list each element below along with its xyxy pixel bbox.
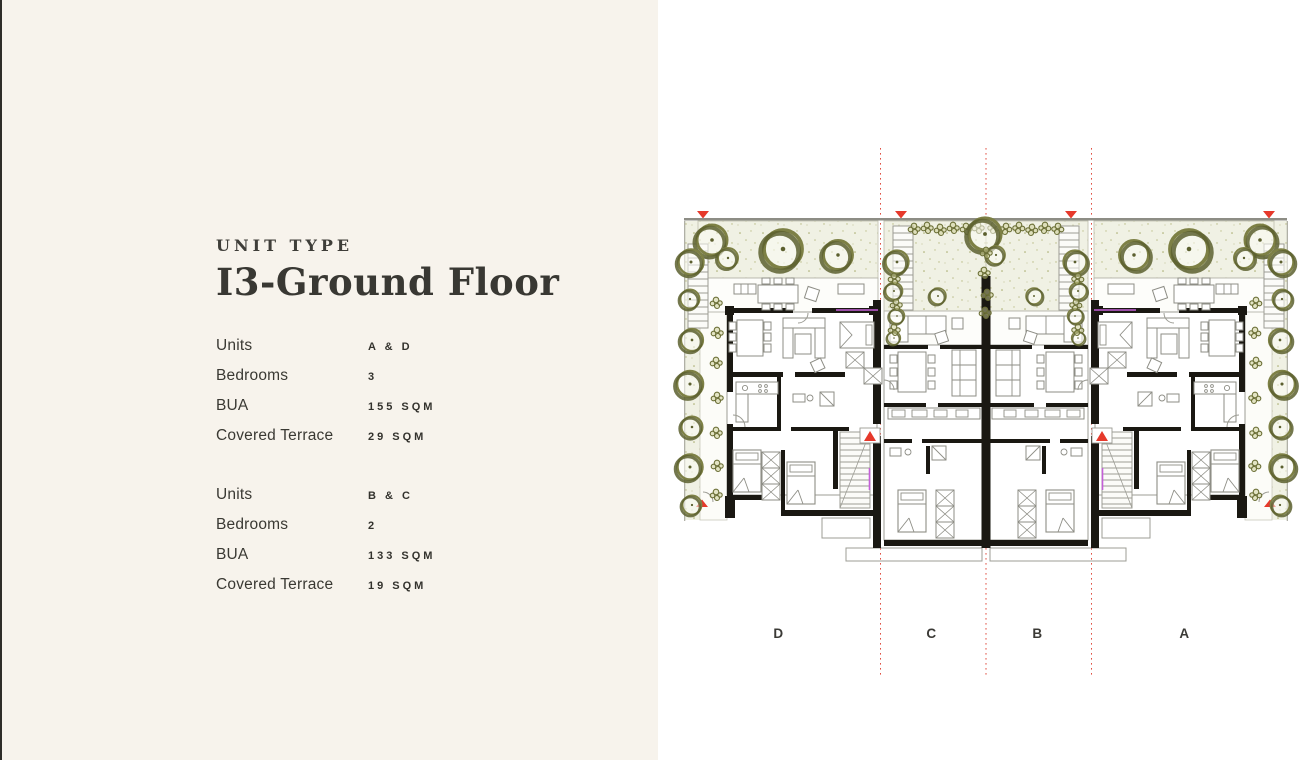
spec-block-units-b-c: Units B & C Bedrooms 2 BUA 133 SQM Cover… — [216, 486, 616, 606]
page-title: I3-Ground Floor — [216, 260, 616, 304]
spec-value: 19 SQM — [368, 580, 426, 592]
spec-block-units-a-d: Units A & D Bedrooms 3 BUA 155 SQM Cover… — [216, 337, 616, 457]
spec-value: 29 SQM — [368, 431, 426, 443]
spec-label: Bedrooms — [216, 516, 368, 534]
spec-row: Covered Terrace 19 SQM — [216, 576, 616, 606]
spec-value: B & C — [368, 490, 413, 502]
spec-value: A & D — [368, 341, 413, 353]
spec-label: Covered Terrace — [216, 576, 368, 594]
spec-label: Units — [216, 337, 368, 355]
spec-row: Units A & D — [216, 337, 616, 367]
unit-label-b: B — [1032, 626, 1043, 641]
spec-label: BUA — [216, 546, 368, 564]
spec-row: Bedrooms 3 — [216, 367, 616, 397]
unit-label-c: C — [926, 626, 937, 641]
spec-row: Covered Terrace 29 SQM — [216, 427, 616, 457]
spec-row: Units B & C — [216, 486, 616, 516]
spec-value: 133 SQM — [368, 550, 435, 562]
spec-label: Covered Terrace — [216, 427, 368, 445]
unit-type-eyebrow: UNIT TYPE — [216, 236, 616, 255]
spec-label: Bedrooms — [216, 367, 368, 385]
floor-plan-drawing: D C B A — [658, 0, 1312, 760]
spec-value: 155 SQM — [368, 401, 435, 413]
spec-value: 3 — [368, 371, 377, 383]
unit-label-d: D — [773, 626, 784, 641]
info-content: UNIT TYPE I3-Ground Floor Units A & D Be… — [216, 236, 616, 606]
spec-label: Units — [216, 486, 368, 504]
spec-row: Bedrooms 2 — [216, 516, 616, 546]
unit-label-a: A — [1179, 626, 1190, 641]
page-left-edge — [0, 0, 2, 760]
page: UNIT TYPE I3-Ground Floor Units A & D Be… — [0, 0, 1312, 760]
spec-row: BUA 133 SQM — [216, 546, 616, 576]
info-panel: UNIT TYPE I3-Ground Floor Units A & D Be… — [0, 0, 658, 760]
floor-plan-panel: D C B A — [658, 0, 1312, 760]
spec-row: BUA 155 SQM — [216, 397, 616, 427]
spec-value: 2 — [368, 520, 377, 532]
spec-label: BUA — [216, 397, 368, 415]
